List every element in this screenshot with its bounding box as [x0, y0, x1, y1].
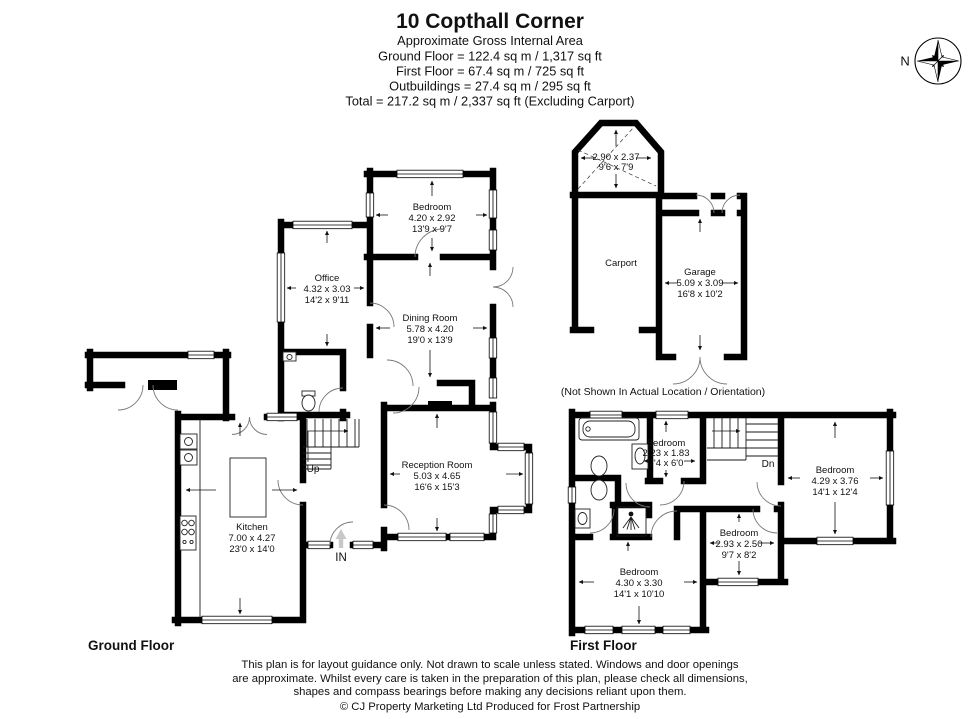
- ff-bedroom-mid-imperial: 9'7 x 8'2: [722, 550, 757, 561]
- chimney-breast: [428, 401, 452, 411]
- gf-bedroom-name: Bedroom: [413, 202, 452, 213]
- gf-kitchen-metric: 7.00 x 4.27: [228, 533, 275, 544]
- compass-rose: N: [900, 38, 961, 84]
- stairs-up-label: Up: [307, 464, 320, 475]
- compass-star-icon: [917, 40, 959, 82]
- header-area-total: Total = 217.2 sq m / 2,337 sq ft (Exclud…: [345, 94, 634, 109]
- floorplan-page: 10 Copthall Corner Approximate Gross Int…: [0, 0, 980, 719]
- toilet-upper: [591, 456, 607, 476]
- gf-office-metric: 4.32 x 3.03: [303, 284, 350, 295]
- porch-wall-stub: [148, 380, 177, 390]
- disclaimer-line-1: This plan is for layout guidance only. N…: [241, 659, 738, 671]
- staircase-down: Dn: [707, 418, 779, 470]
- ff-bedroom-right-imperial: 14'1 x 12'4: [812, 487, 857, 498]
- toilet: [302, 395, 315, 411]
- gf-office-imperial: 14'2 x 9'11: [305, 295, 350, 306]
- page-title: 10 Copthall Corner: [396, 10, 584, 33]
- outbuildings-note: (Not Shown In Actual Location / Orientat…: [561, 386, 765, 398]
- gf-dining-imperial: 19'0 x 13'9: [407, 335, 452, 346]
- ff-bedroom-large-name: Bedroom: [620, 567, 659, 578]
- disclaimer-line-3: shapes and compass bearings before makin…: [293, 686, 686, 698]
- header-block: 10 Copthall Corner Approximate Gross Int…: [345, 10, 634, 109]
- kitchen-sink: [180, 434, 197, 465]
- shower: [617, 507, 646, 536]
- bathtub: [579, 418, 639, 440]
- disclaimer-line-2: are approximate. Whilst every care is ta…: [232, 673, 748, 685]
- entrance-arrow-icon: [336, 529, 347, 548]
- staircase-up: [303, 419, 359, 469]
- compass-north-label: N: [900, 54, 909, 69]
- floorplan-image: 10 Copthall Corner Approximate Gross Int…: [0, 0, 980, 719]
- ff-bedroom-large-metric: 4.30 x 3.30: [615, 578, 662, 589]
- ground-floor-windows: [188, 170, 533, 624]
- gf-kitchen-name: Kitchen: [236, 522, 268, 533]
- gf-bedroom-metric: 4.20 x 2.92: [408, 213, 455, 224]
- ff-bedroom-right-metric: 4.29 x 3.76: [811, 476, 858, 487]
- kitchen-stove: [180, 516, 196, 550]
- garage-metric: 5.09 x 3.09: [676, 278, 723, 289]
- ff-bedroom-right-name: Bedroom: [816, 465, 855, 476]
- gf-dining-metric: 5.78 x 4.20: [406, 324, 453, 335]
- nook-sink: [575, 509, 590, 528]
- toilet-lower: [591, 480, 607, 500]
- header-area-first: First Floor = 67.4 sq m / 725 sq ft: [396, 64, 585, 79]
- garage-name: Garage: [684, 267, 716, 278]
- gf-reception-imperial: 16'6 x 15'3: [414, 482, 459, 493]
- gf-kitchen-imperial: 23'0 x 14'0: [229, 544, 274, 555]
- ff-room-labels: Bedroom 2.23 x 1.83 7'4 x 6'0 Bedroom 4.…: [614, 438, 859, 600]
- kitchen-island: [230, 458, 266, 517]
- outbuildings-plan: 2.90 x 2.37 9'6 x 7'9 Carport Garage 5.0…: [561, 123, 765, 398]
- ff-bedroom-large-imperial: 14'1 x 10'10: [614, 589, 665, 600]
- gf-wc-fixtures: [283, 352, 315, 411]
- header-area-outbuildings: Outbuildings = 27.4 sq m / 295 sq ft: [389, 79, 591, 94]
- gf-bedroom-imperial: 13'9 x 9'7: [412, 224, 452, 235]
- ff-bedroom-mid-metric: 2.93 x 2.50: [715, 539, 762, 550]
- footer-block: This plan is for layout guidance only. N…: [232, 659, 748, 713]
- header-subtitle: Approximate Gross Internal Area: [397, 33, 584, 48]
- ff-bedroom-small-imperial: 7'4 x 6'0: [649, 458, 684, 469]
- gf-dining-name: Dining Room: [403, 313, 458, 324]
- stairs-down-label: Dn: [762, 459, 775, 470]
- shed-imperial: 9'6 x 7'9: [599, 162, 634, 173]
- gf-reception-name: Reception Room: [402, 460, 473, 471]
- kitchen-fixtures: [180, 419, 266, 617]
- copyright-line: © CJ Property Marketing Ltd Produced for…: [340, 701, 640, 713]
- entrance-marker: IN: [335, 529, 347, 564]
- garage-imperial: 16'8 x 10'2: [677, 289, 722, 300]
- first-floor-label: First Floor: [570, 638, 637, 653]
- carport-name: Carport: [605, 258, 637, 269]
- gf-office-name: Office: [315, 273, 340, 284]
- header-area-ground: Ground Floor = 122.4 sq m / 1,317 sq ft: [378, 49, 602, 64]
- ground-floor-label: Ground Floor: [88, 638, 175, 653]
- ff-bedroom-mid-name: Bedroom: [720, 528, 759, 539]
- ground-floor-plan: IN Up Bedroom 4.20 x 2.92 13'9 x 9'7 Off…: [88, 170, 533, 653]
- first-floor-plan: Dn: [568, 411, 894, 653]
- gf-reception-metric: 5.03 x 4.65: [413, 471, 460, 482]
- entrance-label: IN: [335, 552, 347, 564]
